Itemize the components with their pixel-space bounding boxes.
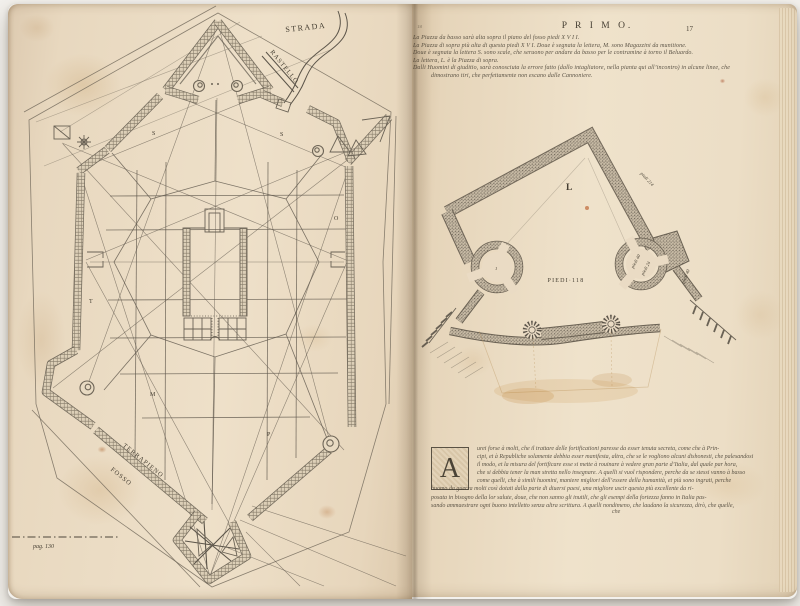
label-piazza-L: L	[566, 183, 572, 193]
intro-line: La Piazza da basso sarà alta sopra il pi…	[413, 35, 791, 43]
stain	[502, 388, 554, 404]
fortress-town-plan-figure: STRADA RASTELLO TERRAPIENO FOSSO S S O T…	[10, 5, 410, 593]
plan-letter: O	[334, 216, 339, 222]
label-strada: STRADA	[285, 21, 327, 34]
stair-tower-left: 1	[468, 244, 519, 292]
running-title: P R I M O.	[420, 21, 775, 31]
label-piedi-base: PIEDI·118	[548, 278, 585, 284]
stain	[592, 373, 632, 387]
intro-line: La Piazza di sopra più alta di questa pi…	[413, 43, 791, 51]
plan-letter: S	[280, 132, 283, 138]
plan-letter: S	[152, 131, 155, 137]
paragraph-line: huomo da guerra molti così dotati dalla …	[431, 485, 792, 493]
paragraph-line: posata in bisogno della lor salute, doue…	[431, 494, 792, 502]
glacis-hatching	[430, 336, 714, 378]
paragraph-line: cipi, et à Republiche solamente debbia e…	[477, 453, 792, 461]
plan-letter: M	[150, 392, 156, 398]
label-rastello: RASTELLO	[268, 49, 299, 85]
upper-left-bastion-works	[54, 126, 91, 149]
label-fosso: FOSSO	[109, 466, 133, 487]
folio-number: 17	[686, 25, 693, 33]
bastion-faces	[447, 135, 699, 321]
stain	[585, 206, 589, 210]
plan-dot	[217, 83, 219, 85]
catchword: che	[612, 509, 620, 515]
paragraph-line: che si debbia tener la man stretta nello…	[477, 469, 792, 477]
tower-mark: 1	[495, 266, 497, 271]
intro-line: La lettera, L. è la Piazza di sopra.	[413, 58, 791, 66]
caption-text-block: La Piazza da basso sarà alta sopra il pi…	[413, 35, 791, 80]
page-ref: pag. 130	[32, 544, 54, 550]
intro-line: Dalli Huomini di giuditio, sarà conosciu…	[413, 65, 791, 73]
curtain-gates	[87, 252, 345, 267]
plan-letter: T	[89, 299, 93, 305]
paragraph-line: come quelli, che à simili huomini, manie…	[477, 477, 792, 485]
street-grid	[104, 100, 347, 504]
crenellated-wall-right	[690, 300, 736, 344]
rampart-walls	[46, 22, 389, 580]
paragraph-line: urei forse à molti, che il trattare dell…	[477, 445, 792, 453]
plan-dot	[211, 83, 213, 85]
paragraph-line: il modo, et la misura del fortificare es…	[477, 461, 792, 469]
intro-line: Doue è segnata la lettera S. sono scale,…	[413, 50, 791, 58]
label-piedi-face: piedi 214	[639, 170, 656, 187]
book-photo: STRADA RASTELLO TERRAPIENO FOSSO S S O T…	[0, 0, 800, 606]
body-paragraph: urei forse à molti, che il trattare dell…	[431, 445, 792, 510]
page-edges	[779, 8, 797, 592]
intro-line: dimostrano tiri, che perfettamente non e…	[431, 73, 791, 81]
